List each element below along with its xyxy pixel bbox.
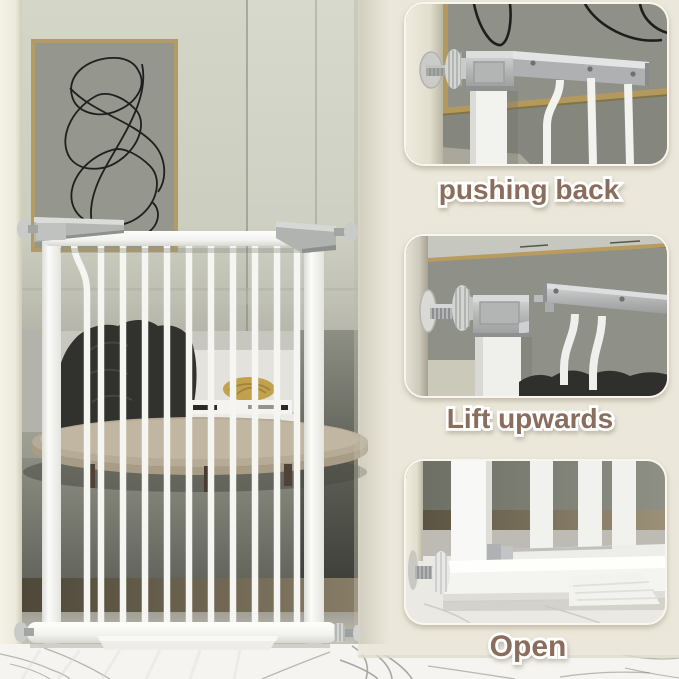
svg-text:Lift upwards: Lift upwards (447, 403, 613, 434)
svg-text:Open: Open (490, 630, 567, 663)
svg-text:pushing back: pushing back (439, 174, 620, 205)
